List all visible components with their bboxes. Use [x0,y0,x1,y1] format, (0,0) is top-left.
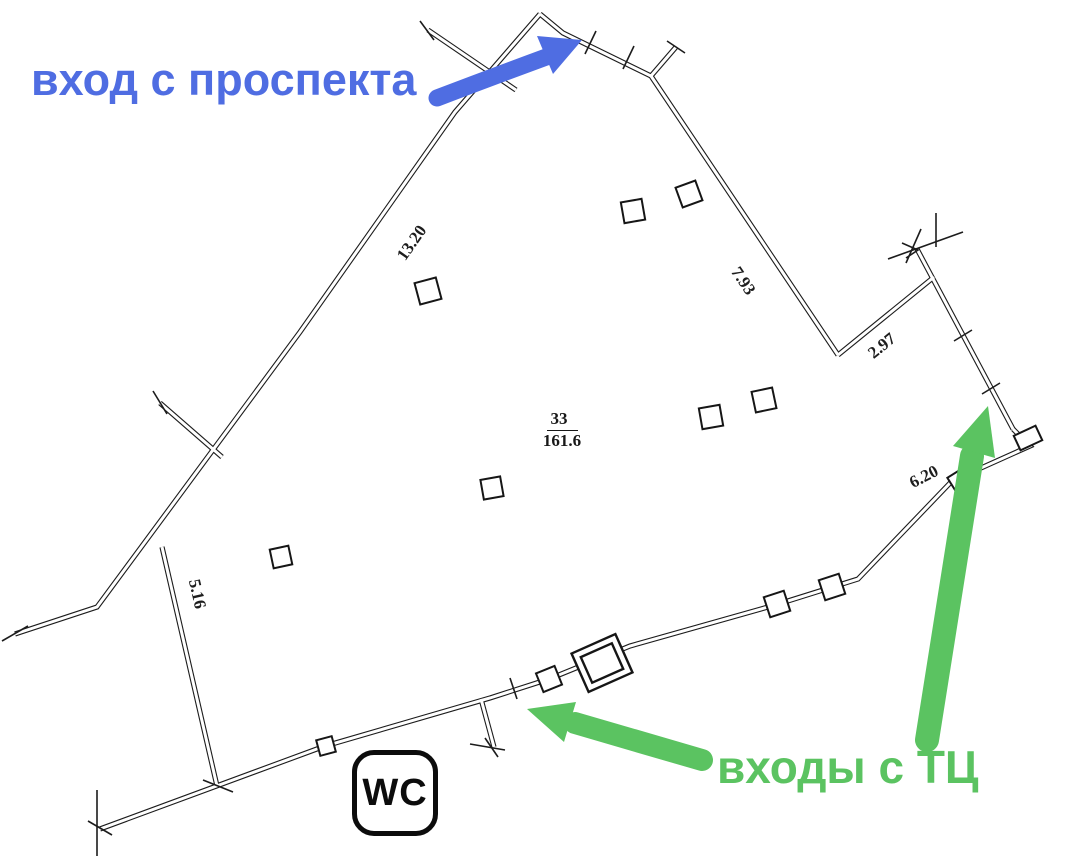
walls-outer [15,14,1030,829]
green-arrow-long-icon [927,406,995,740]
floor-plan-page: вход с проспекта входы с ТЦ 13.20 7.93 2… [0,0,1065,860]
room-number: 33 [547,410,578,431]
survey-ticks [2,21,1000,856]
wc-badge: WC [352,750,438,836]
vestibule [572,634,633,692]
entrance-from-avenue-label: вход с проспекта [31,54,416,106]
room-area: 161.6 [531,432,593,451]
walls-inner [15,14,1030,829]
room-designation: 33 161.6 [531,410,593,450]
entrances-from-mall-label: входы с ТЦ [717,740,979,794]
green-arrow-short-icon [527,702,702,760]
